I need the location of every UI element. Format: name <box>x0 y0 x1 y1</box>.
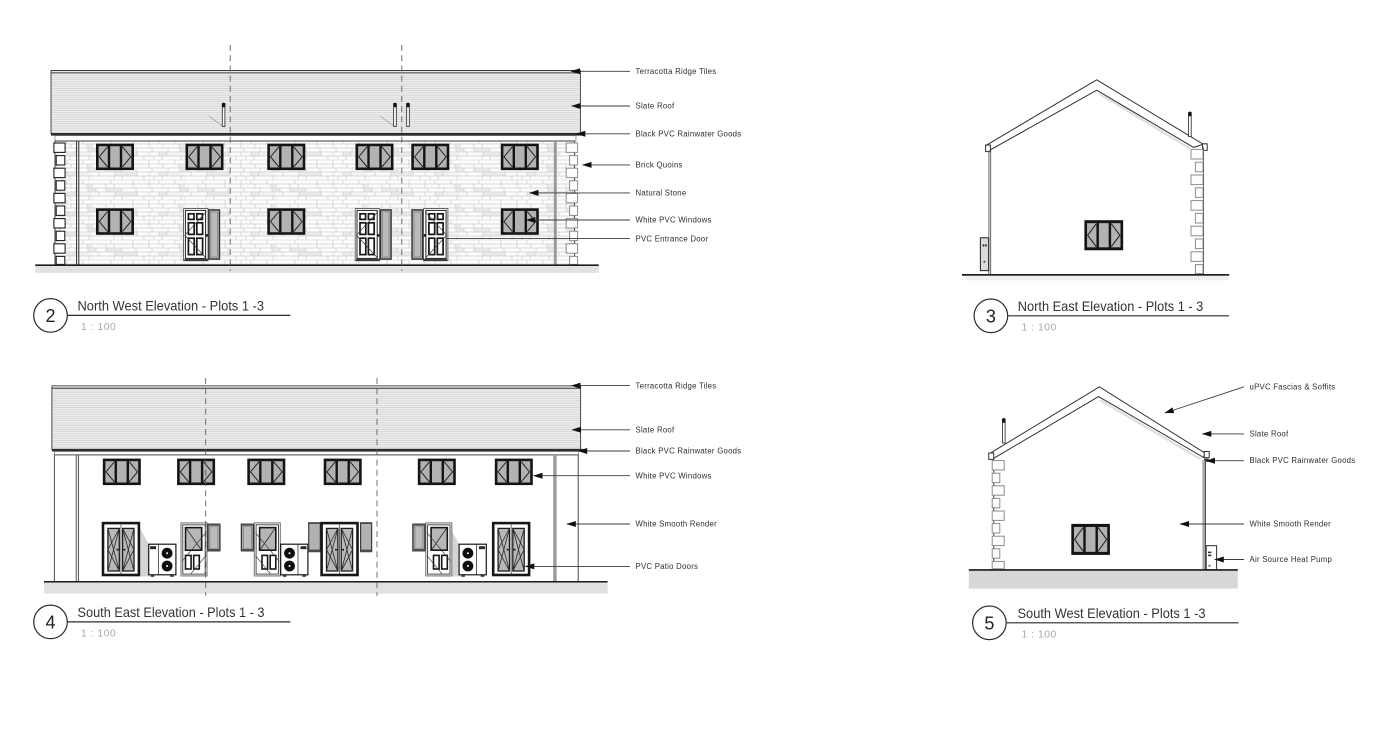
svg-text:Air Source Heat Pump: Air Source Heat Pump <box>1250 555 1333 564</box>
svg-text:3: 3 <box>986 306 996 326</box>
svg-text:PVC Patio Doors: PVC Patio Doors <box>636 562 699 571</box>
svg-text:White Smooth Render: White Smooth Render <box>1250 520 1332 529</box>
svg-text:PVC Entrance Door: PVC Entrance Door <box>636 234 709 243</box>
svg-text:White PVC Windows: White PVC Windows <box>636 216 712 225</box>
svg-text:1 : 100: 1 : 100 <box>1022 629 1057 640</box>
svg-text:Natural Stone: Natural Stone <box>636 189 687 198</box>
svg-text:North West Elevation - Plots 1: North West Elevation - Plots 1 -3 <box>78 298 265 314</box>
svg-text:South East Elevation - Plots 1: South East Elevation - Plots 1 - 3 <box>78 604 265 620</box>
svg-text:5: 5 <box>984 613 994 633</box>
svg-text:Slate Roof: Slate Roof <box>636 102 675 111</box>
svg-text:uPVC Fascias & Soffits: uPVC Fascias & Soffits <box>1250 383 1336 392</box>
svg-text:4: 4 <box>45 613 55 633</box>
svg-text:North East Elevation - Plots 1: North East Elevation - Plots 1 - 3 <box>1018 298 1204 314</box>
svg-text:1 : 100: 1 : 100 <box>1022 322 1057 333</box>
svg-text:Black PVC Rainwater Goods: Black PVC Rainwater Goods <box>636 130 742 139</box>
svg-text:1 : 100: 1 : 100 <box>81 322 116 333</box>
svg-text:White PVC Windows: White PVC Windows <box>636 471 712 480</box>
svg-text:South West Elevation - Plots 1: South West Elevation - Plots 1 -3 <box>1018 605 1206 621</box>
svg-text:White Smooth Render: White Smooth Render <box>636 520 718 529</box>
svg-text:Black PVC Rainwater Goods: Black PVC Rainwater Goods <box>1250 456 1356 465</box>
svg-text:Slate Roof: Slate Roof <box>636 426 675 435</box>
svg-text:Brick Quoins: Brick Quoins <box>636 161 683 170</box>
svg-text:Terracotta Ridge Tiles: Terracotta Ridge Tiles <box>636 67 717 76</box>
svg-text:Terracotta Ridge Tiles: Terracotta Ridge Tiles <box>636 381 717 390</box>
svg-text:Black PVC Rainwater Goods: Black PVC Rainwater Goods <box>636 447 742 456</box>
svg-text:2: 2 <box>45 306 55 326</box>
svg-text:Slate Roof: Slate Roof <box>1250 430 1289 439</box>
svg-text:1 : 100: 1 : 100 <box>81 629 116 640</box>
